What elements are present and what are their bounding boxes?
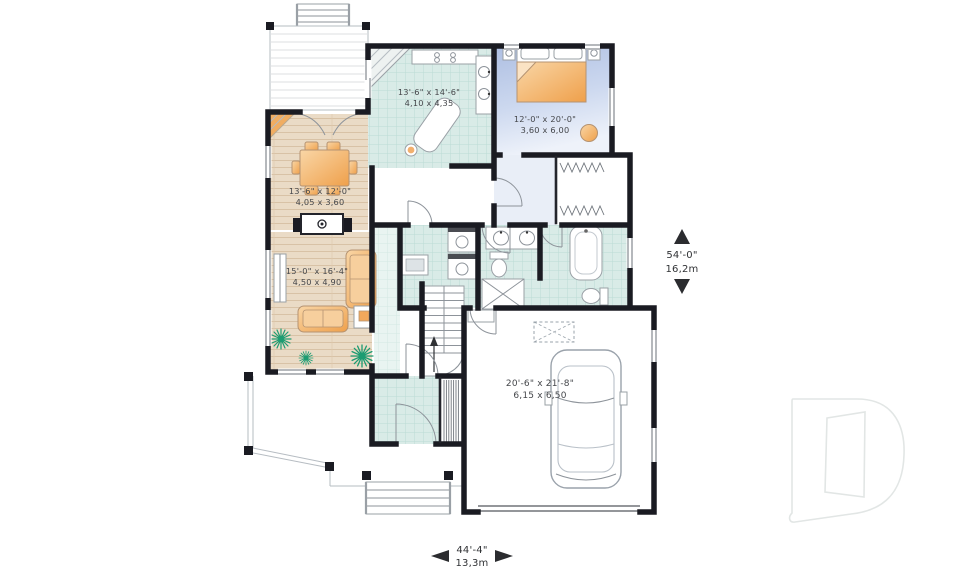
plant: [271, 329, 291, 349]
car: [545, 350, 627, 488]
patio-door: [365, 60, 372, 98]
loveseat: [298, 306, 348, 332]
toilet: [600, 288, 608, 305]
entry-closet: [444, 380, 458, 442]
width-imperial: 44'-4": [456, 545, 487, 556]
dining-dim-metric: 4,05 x 3,60: [296, 197, 345, 207]
bedroom-dim-imperial: 12'-0" x 20'-0": [514, 114, 576, 124]
plant: [299, 351, 313, 365]
width-metric: 13,3m: [455, 558, 488, 569]
living-dim-metric: 4,50 x 4,90: [293, 277, 342, 287]
rear-deck: [266, 4, 370, 110]
bed: [517, 46, 586, 102]
bedroom-dim-metric: 3,60 x 6,00: [521, 125, 570, 135]
dining-table: [300, 150, 349, 186]
living-dim-imperial: 15'-0" x 16'-4": [286, 266, 348, 276]
kitchen-counter: [476, 56, 492, 114]
width-dimension-marker: 44'-4" 13,3m: [431, 545, 513, 569]
depth-metric: 16,2m: [665, 264, 698, 275]
logo-d-outline: [790, 399, 904, 522]
kitchen-dim-imperial: 13'-6" x 14'-6": [398, 87, 460, 97]
garage-door: [478, 506, 640, 511]
drummond-logo: [790, 399, 904, 522]
garage-step: [468, 310, 494, 322]
garage: [468, 310, 640, 511]
dining-dim-imperial: 13'-6" x 12'-0": [289, 186, 351, 196]
vanity: [486, 227, 542, 249]
depth-imperial: 54'-0": [666, 250, 697, 261]
floor-plan-page: 13'-6" x 14'-6" 4,10 x 4,35 12'-0" x 20'…: [0, 0, 960, 569]
bedroom-chair: [581, 125, 598, 142]
fireplace: [293, 214, 352, 234]
garage-dim-metric: 6,15 x 6,50: [513, 391, 566, 401]
floor-plan-drawing: 13'-6" x 14'-6" 4,10 x 4,35 12'-0" x 20'…: [0, 0, 960, 569]
foyer-floor: [374, 376, 440, 444]
depth-dimension-marker: 54'-0" 16,2m: [665, 229, 698, 294]
kitchen-dim-metric: 4,10 x 4,35: [405, 98, 454, 108]
garage-dim-imperial: 20'-6" x 21'-8": [506, 379, 574, 389]
stairs: [424, 286, 464, 376]
